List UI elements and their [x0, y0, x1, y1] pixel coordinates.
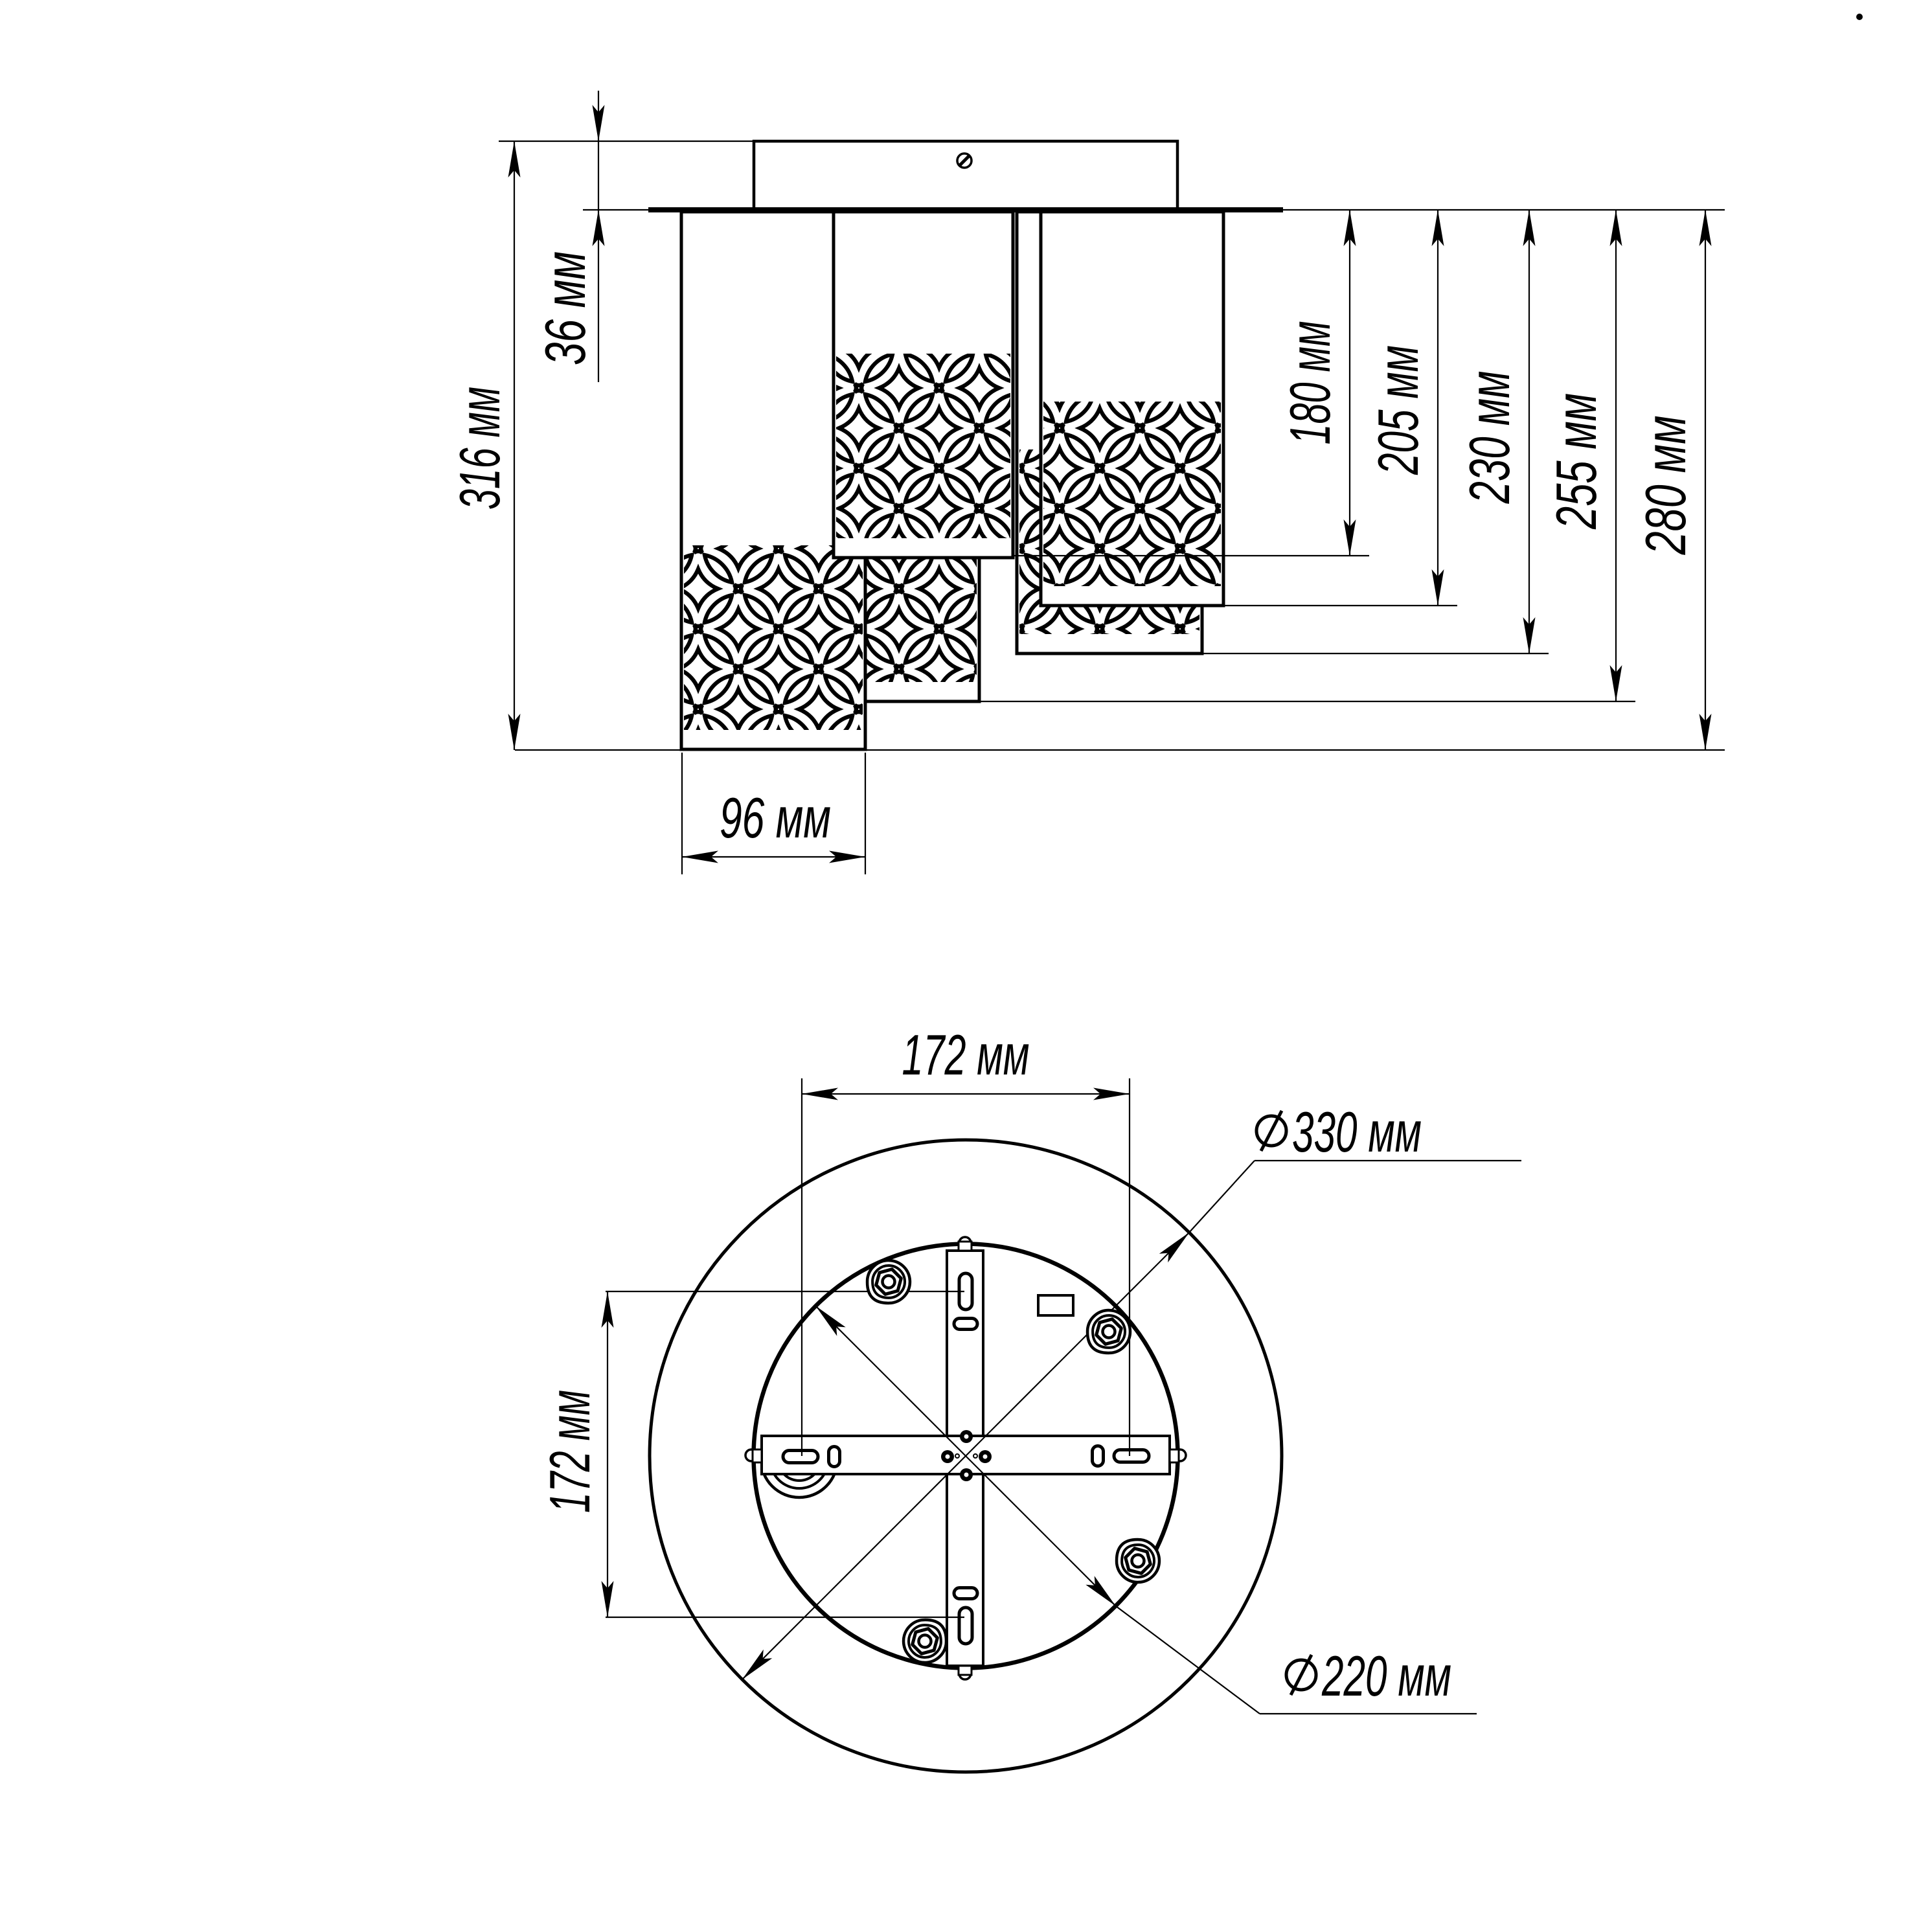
svg-text:180 мм: 180 мм — [1278, 321, 1342, 445]
svg-text:172 мм: 172 мм — [538, 1390, 602, 1513]
svg-text:330 мм: 330 мм — [1292, 1100, 1422, 1164]
svg-text:172 мм: 172 мм — [902, 1023, 1030, 1087]
svg-text:96 мм: 96 мм — [720, 786, 831, 850]
svg-text:36 мм: 36 мм — [533, 251, 597, 365]
svg-text:230 мм: 230 мм — [1457, 371, 1521, 505]
svg-text:255 мм: 255 мм — [1544, 393, 1608, 530]
svg-text:316 мм: 316 мм — [448, 387, 512, 510]
svg-text:220 мм: 220 мм — [1321, 1644, 1451, 1708]
svg-text:280 мм: 280 мм — [1633, 416, 1698, 556]
svg-text:205 мм: 205 мм — [1366, 345, 1430, 475]
